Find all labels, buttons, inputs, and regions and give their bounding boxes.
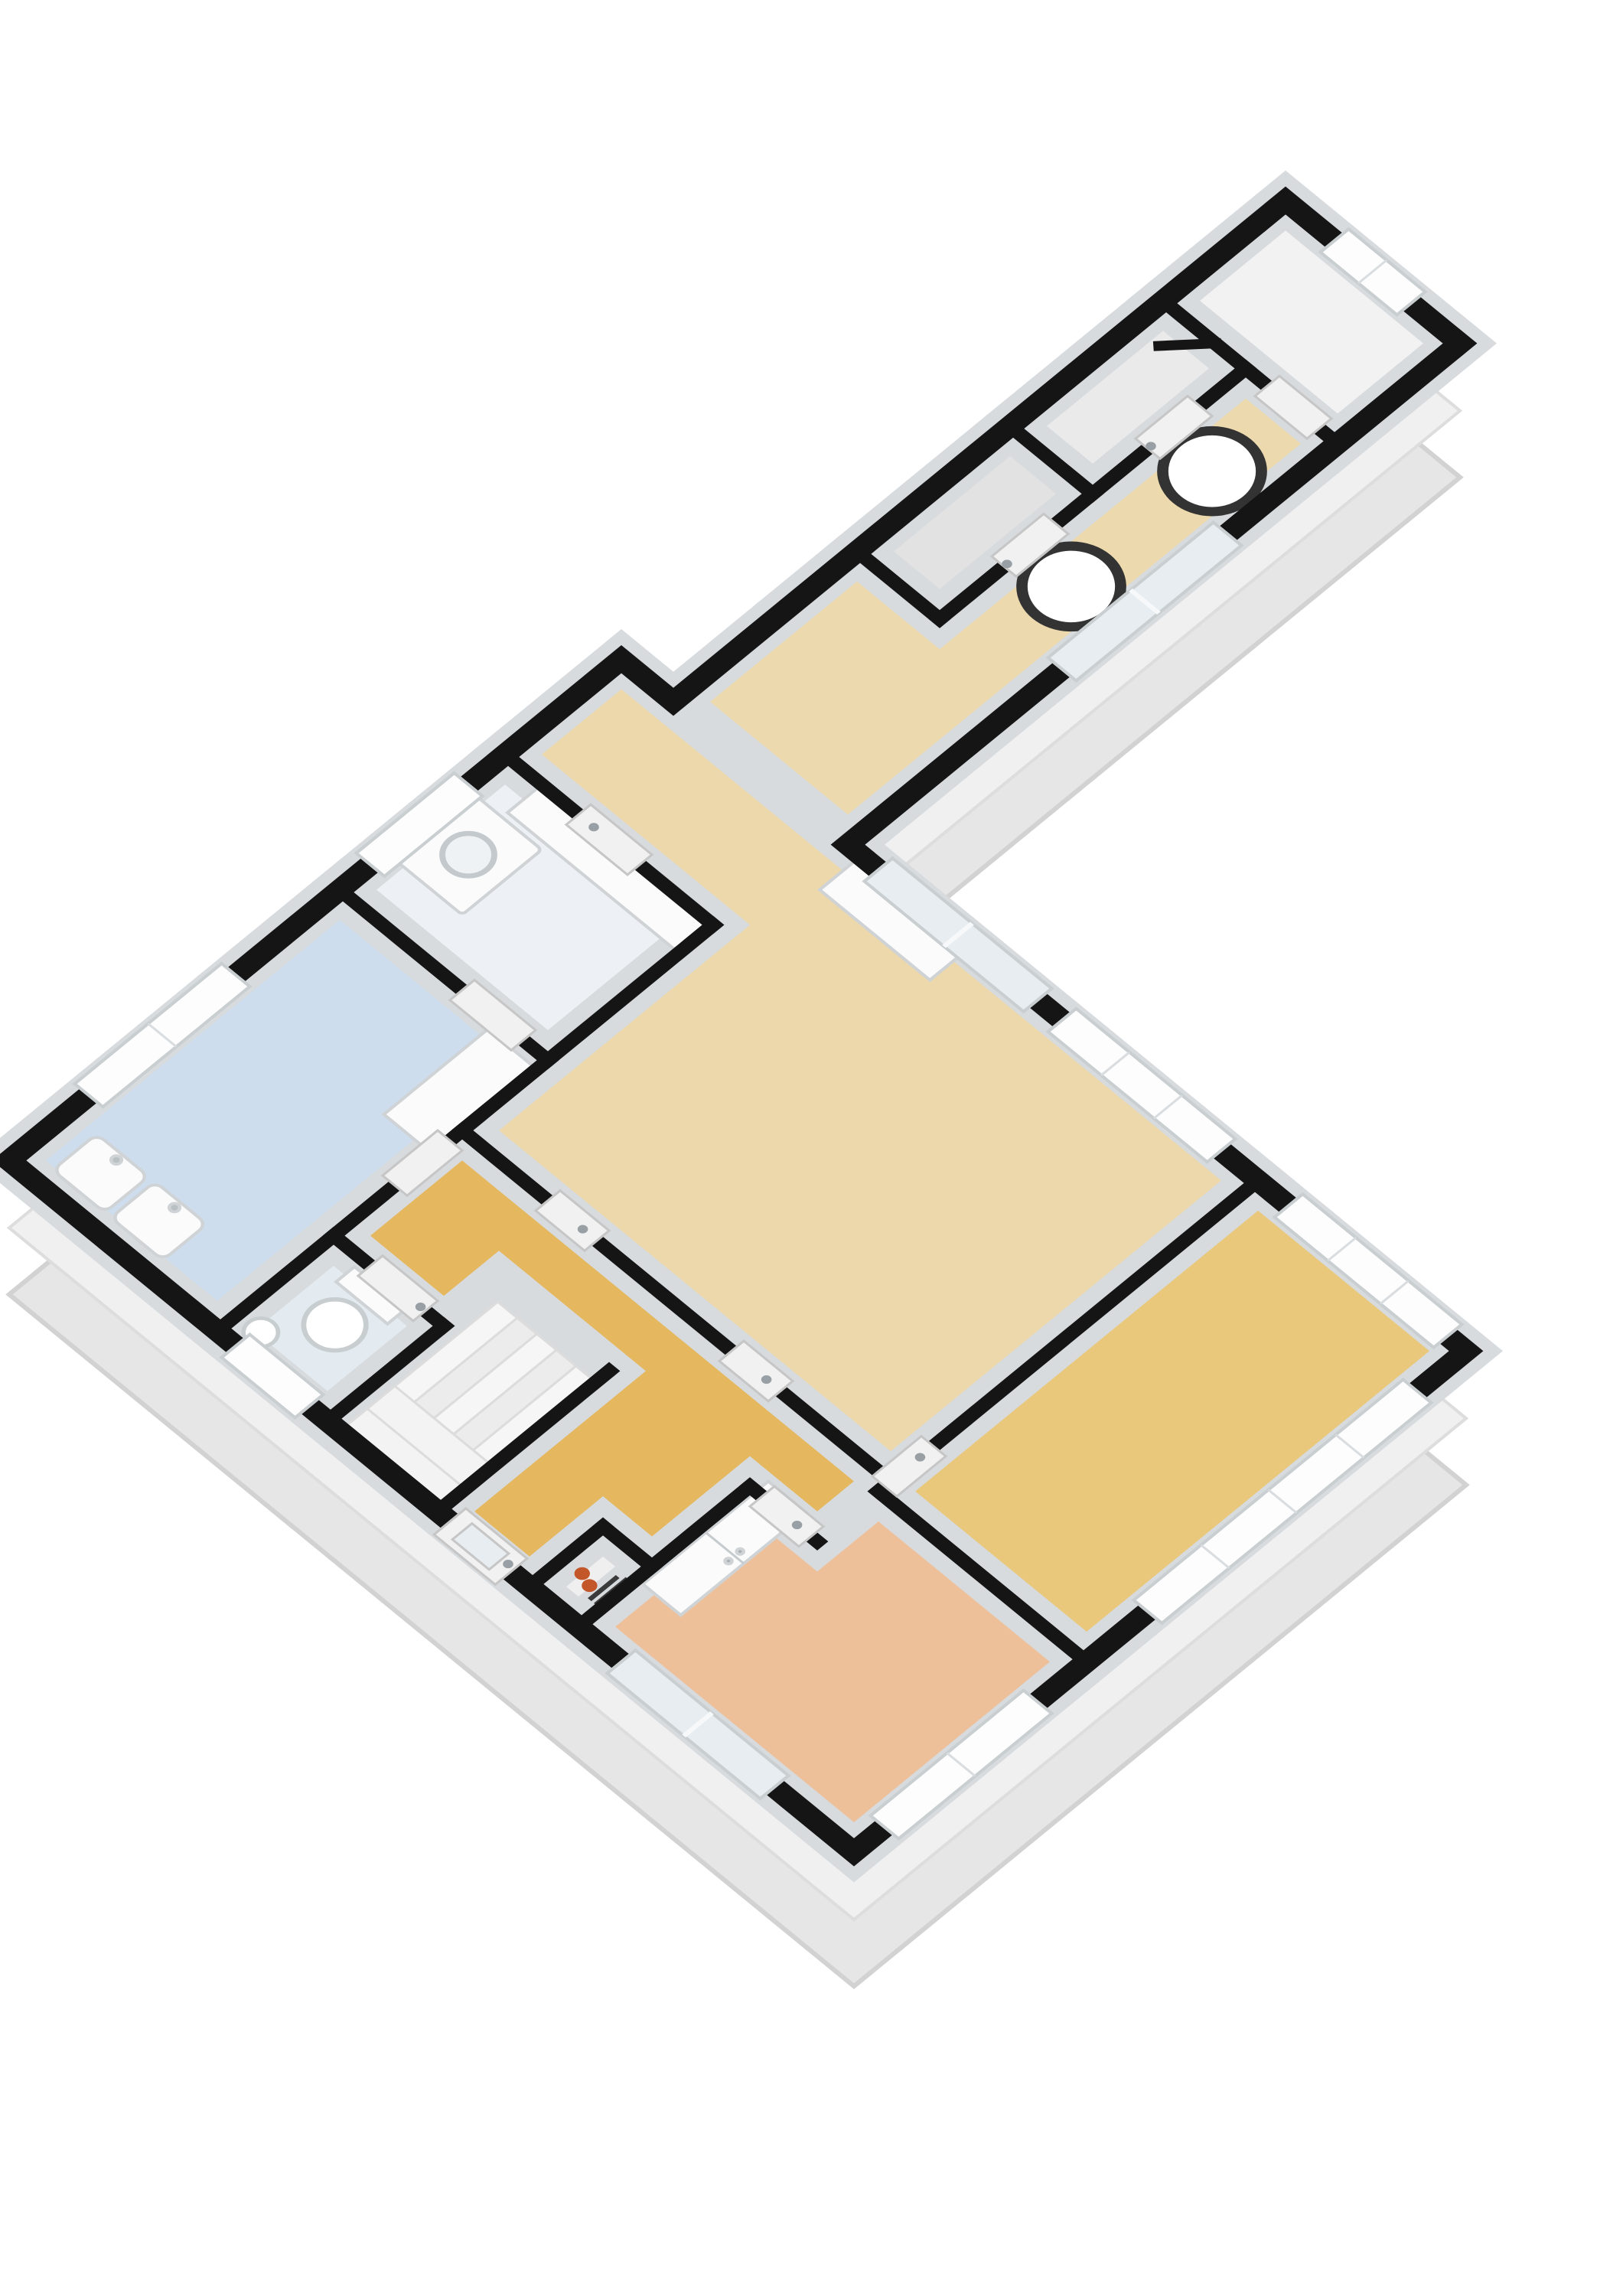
isometric-plan — [0, 135, 1623, 1877]
wardrobe-handle-icon — [735, 1548, 745, 1555]
floor-plan-stage — [0, 0, 1623, 2296]
floor-plan-canvas — [0, 0, 1623, 2296]
wardrobe-handle-icon — [724, 1557, 734, 1564]
